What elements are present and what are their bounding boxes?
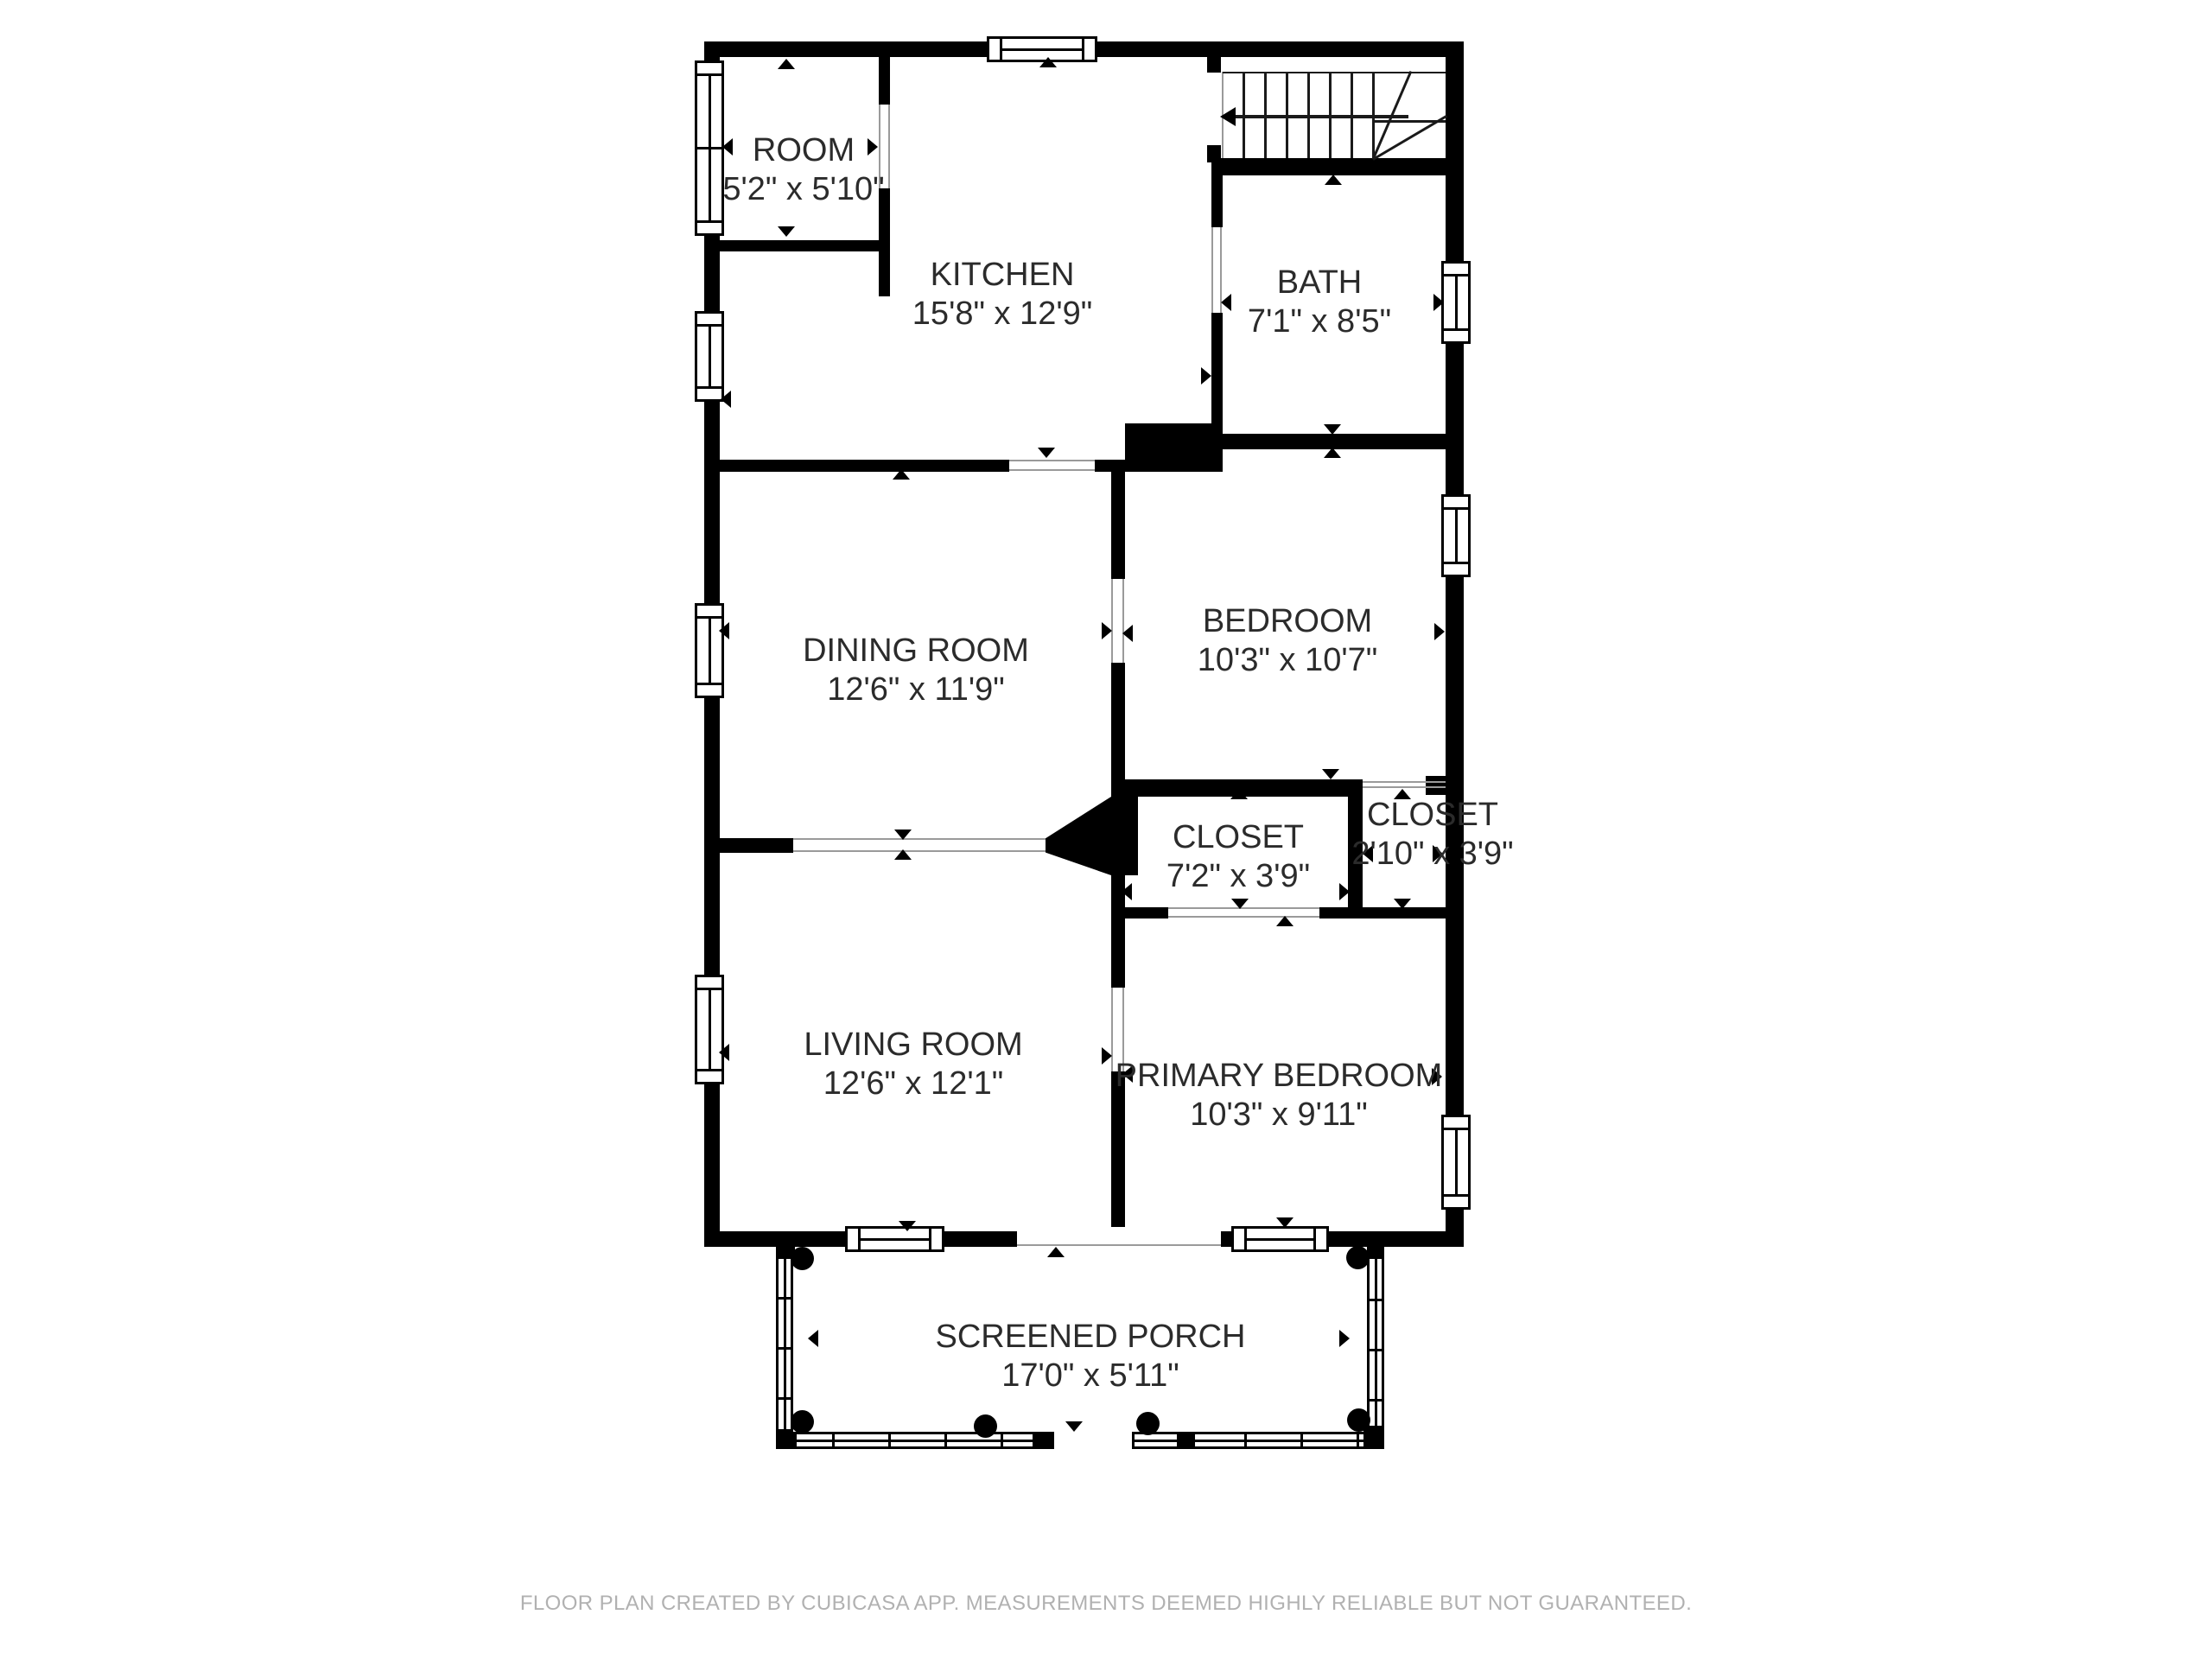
porch-post [1346,1246,1370,1269]
wall [1329,1231,1464,1247]
dimension-arrow-down [1322,769,1339,779]
dimension-arrow-down [1065,1421,1083,1432]
closet-door [1363,781,1446,783]
footer-disclaimer: FLOOR PLAN CREATED BY CUBICASA APP. MEAS… [0,1592,2212,1616]
dimension-arrow-left [1122,625,1133,642]
dimension-arrow-left [721,391,731,408]
porch-wall [776,1432,1054,1449]
porch-post [791,1247,814,1270]
porch-rail-cap [1033,1432,1054,1449]
room-name: CLOSET [1166,818,1310,857]
dimension-arrow-up [894,849,912,860]
closet-door [1168,916,1319,918]
dimension-arrow-left [1122,883,1132,900]
dimension-arrow-up [1047,1247,1065,1257]
door-opening [1211,227,1213,313]
wall [1122,907,1168,918]
room-name: KITCHEN [912,256,1092,295]
dimension-arrow-right [1434,623,1445,640]
door-opening [1111,579,1113,663]
room-label-kitchen: KITCHEN 15'8" x 12'9" [912,256,1092,334]
room-label-bath: BATH 7'1" x 8'5" [1248,264,1391,341]
porch-wall [776,1247,793,1432]
door-opening [1122,579,1124,663]
room-name: CLOSET [1351,796,1513,835]
window [695,603,724,698]
room-dims: 10'3" x 10'7" [1198,641,1377,680]
wall [1446,41,1464,261]
room-label-dining: DINING ROOM 12'6" x 11'9" [803,632,1029,709]
room-opening [793,838,1046,840]
wall [1319,907,1446,918]
window [695,975,724,1084]
window [845,1226,944,1252]
room-dims: 5'2" x 5'10" [722,170,884,209]
porch-post [1136,1412,1160,1435]
stair-direction-arrow [1234,115,1408,118]
wall [704,402,720,603]
wall [1426,776,1446,795]
stair-arrow-head [1220,107,1236,126]
dimension-arrow-up [893,469,910,480]
room-name: ROOM [722,131,884,170]
wall [1207,57,1221,73]
porch-post [974,1414,997,1438]
room-dims: 7'1" x 8'5" [1248,302,1391,341]
stair-tread [1223,72,1446,73]
window [1441,1115,1471,1210]
window [1441,494,1471,577]
dimension-arrow-right [1339,883,1350,900]
porch-wall [1132,1432,1384,1449]
porch-post [1347,1408,1370,1432]
window [1441,261,1471,344]
room-name: DINING ROOM [803,632,1029,671]
dimension-arrow-up [1324,448,1341,458]
room-dims: 10'3" x 9'11" [1116,1096,1443,1135]
wall [1211,175,1223,227]
wall [879,57,890,105]
room-dims: 2'10" x 3'9" [1351,835,1513,874]
room-dims: 17'0" x 5'11" [936,1357,1246,1395]
room-dims: 12'6" x 11'9" [803,671,1029,709]
floorplan-canvas: ROOM 5'2" x 5'10" KITCHEN 15'8" x 12'9" … [0,0,2212,1659]
dimension-arrow-down [894,829,912,840]
dimension-arrow-left [808,1330,818,1347]
dimension-arrow-up [778,59,795,69]
room-label-porch: SCREENED PORCH 17'0" x 5'11" [936,1318,1246,1395]
room-dims: 7'2" x 3'9" [1166,857,1310,896]
porch-wall [1367,1249,1384,1428]
room-name: SCREENED PORCH [936,1318,1246,1357]
room-opening [1009,460,1095,461]
porch-corner [776,1432,797,1449]
porch-post [791,1410,814,1433]
wall [1111,460,1125,579]
dimension-arrow-right [1433,294,1444,311]
wall [1211,158,1446,175]
dimension-arrow-up [1325,175,1342,185]
dimension-arrow-down [1276,1217,1294,1228]
dimension-arrow-up [1276,916,1294,926]
room-name: PRIMARY BEDROOM [1116,1057,1443,1096]
dimension-arrow-right [1201,367,1211,385]
dimension-arrow-down [899,1221,916,1231]
door-opening [888,105,890,188]
room-name: BEDROOM [1198,602,1377,641]
wall [704,41,987,57]
room-label-closet-small: CLOSET 2'10" x 3'9" [1351,796,1513,874]
wall [704,1231,845,1247]
room-label-room: ROOM 5'2" x 5'10" [722,131,884,209]
window [1231,1226,1329,1252]
window [695,311,724,402]
wall [944,1231,1017,1247]
dimension-arrow-right [1102,622,1112,639]
dimension-arrow-down [1231,899,1249,909]
dimension-arrow-left [1221,294,1231,311]
dimension-arrow-down [778,226,795,237]
room-opening [1009,469,1095,471]
room-label-primary: PRIMARY BEDROOM 10'3" x 9'11" [1116,1057,1443,1135]
dimension-arrow-down [1394,899,1411,909]
wall [704,460,1009,472]
porch-corner [1363,1428,1384,1449]
wall [1097,41,1464,57]
dimension-arrow-left [719,622,729,639]
window [695,60,724,236]
dimension-arrow-down [1324,424,1341,435]
room-name: BATH [1248,264,1391,302]
dimension-arrow-left [719,1044,729,1061]
dimension-arrow-right [1339,1330,1350,1347]
porch-rail-cap [1177,1432,1195,1449]
dimension-arrow-right [1102,1047,1112,1065]
wall [704,1084,720,1247]
room-dims: 12'6" x 12'1" [804,1065,1022,1103]
wall [704,240,890,251]
dimension-arrow-down [1038,448,1055,458]
room-label-living: LIVING ROOM 12'6" x 12'1" [804,1026,1022,1103]
room-label-closet: CLOSET 7'2" x 3'9" [1166,818,1310,896]
porch-corner [1367,1247,1384,1259]
porch-door [1017,1244,1221,1246]
room-name: LIVING ROOM [804,1026,1022,1065]
dimension-arrow-up [1230,789,1248,799]
closet-door [1363,786,1446,788]
room-opening [793,850,1046,852]
wall [704,698,720,975]
wall [1221,1231,1231,1247]
dimension-arrow-up [1039,57,1057,67]
wall [1446,344,1464,494]
wall-wedge [1046,797,1138,875]
wall [720,838,793,853]
stair-return-line [1373,120,1446,123]
room-label-bedroom: BEDROOM 10'3" x 10'7" [1198,602,1377,680]
room-dims: 15'8" x 12'9" [912,295,1092,334]
wall [704,41,720,60]
